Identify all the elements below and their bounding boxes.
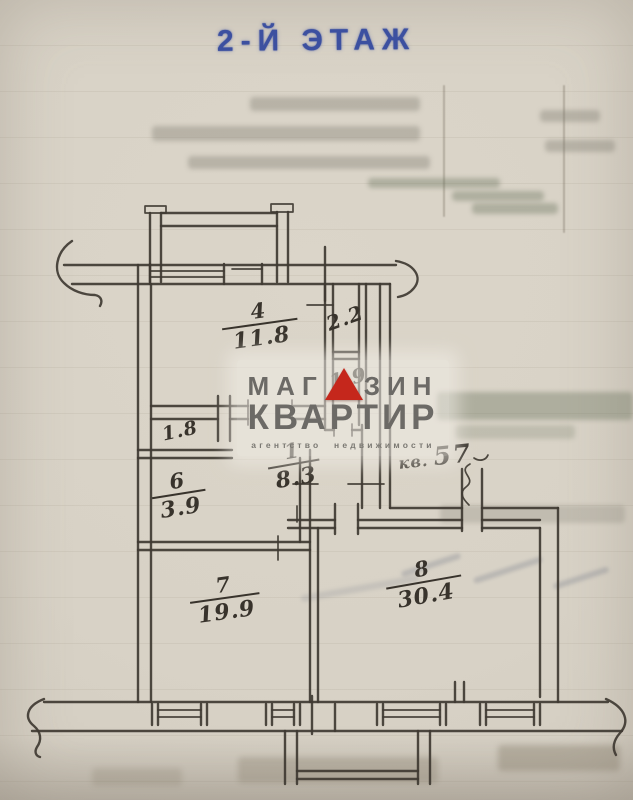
bottom-windows — [152, 682, 540, 734]
brand-bottom-text: КВАРТИР — [243, 400, 443, 437]
balcony-bottom — [285, 731, 430, 784]
outer-walls — [32, 265, 622, 731]
red-triangle-icon — [325, 368, 363, 400]
top-wall-windows — [150, 247, 325, 301]
agency-watermark: МАГ ЗИН КВАРТИР агентство недвижимости — [237, 360, 449, 456]
brand-tagline: агентство недвижимости — [243, 440, 443, 450]
scanned-floor-plan-page: 2-Й ЭТАЖ — [0, 0, 633, 800]
room-label-7: 7 19.9 — [187, 569, 263, 630]
room-label-6: 6 3.9 — [148, 466, 209, 525]
brand-right-text: ЗИН — [364, 373, 439, 399]
brand-left-text: МАГ — [248, 373, 324, 399]
watermark-brand-row: МАГ ЗИН — [243, 368, 443, 399]
room-label-4: 4 11.8 — [219, 295, 301, 357]
